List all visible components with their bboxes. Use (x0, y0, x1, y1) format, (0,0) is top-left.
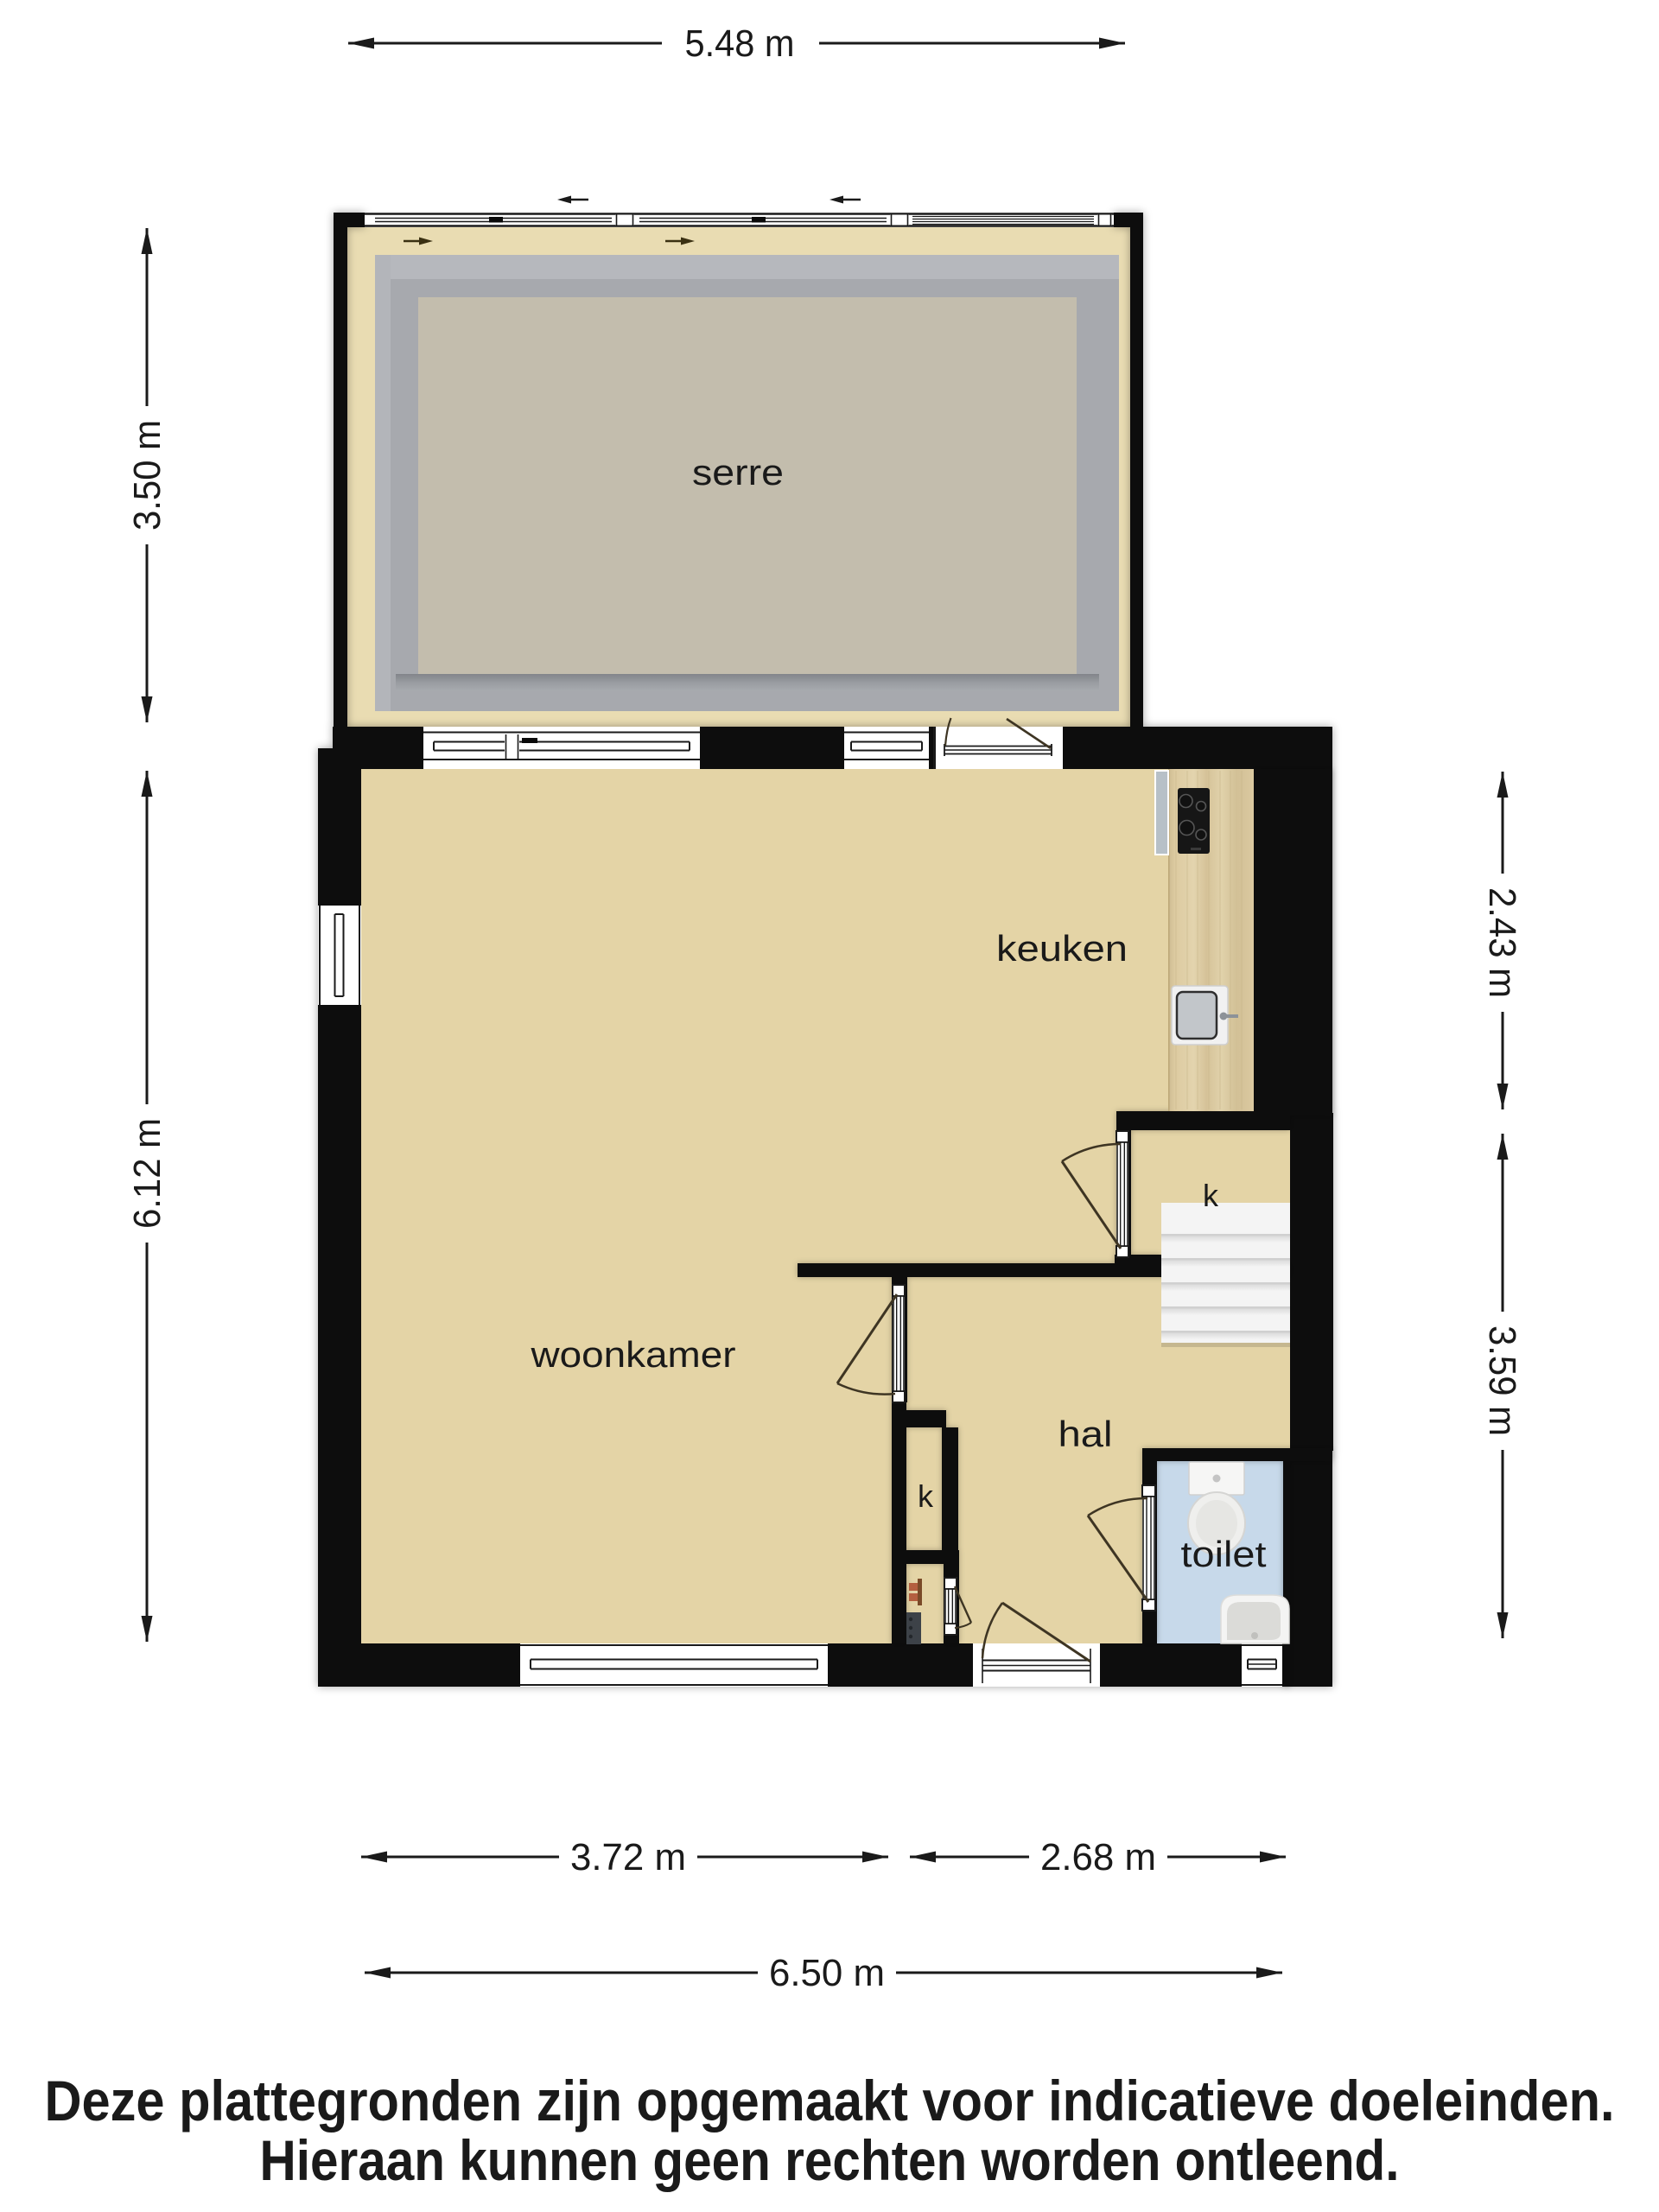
svg-text:6.12 m: 6.12 m (126, 1118, 168, 1229)
svg-text:2.68 m: 2.68 m (1040, 1836, 1156, 1878)
svg-text:woonkamer: woonkamer (530, 1334, 735, 1375)
svg-text:3.59 m: 3.59 m (1481, 1325, 1523, 1436)
svg-text:Hieraan kunnen geen rechten wo: Hieraan kunnen geen rechten worden ontle… (260, 2128, 1400, 2192)
svg-text:3.50 m: 3.50 m (126, 420, 168, 531)
svg-text:2.43 m: 2.43 m (1481, 887, 1523, 998)
svg-text:3.72 m: 3.72 m (570, 1836, 686, 1878)
svg-text:k: k (918, 1478, 934, 1514)
svg-text:6.50 m: 6.50 m (769, 1952, 885, 1994)
svg-text:keuken: keuken (996, 928, 1128, 969)
svg-text:5.48 m: 5.48 m (685, 22, 795, 65)
svg-text:Deze plattegronden zijn opgema: Deze plattegronden zijn opgemaakt voor i… (45, 2069, 1615, 2133)
svg-text:hal: hal (1058, 1414, 1113, 1454)
svg-text:serre: serre (692, 452, 784, 493)
svg-text:toilet: toilet (1181, 1534, 1267, 1574)
svg-text:k: k (1203, 1178, 1219, 1213)
